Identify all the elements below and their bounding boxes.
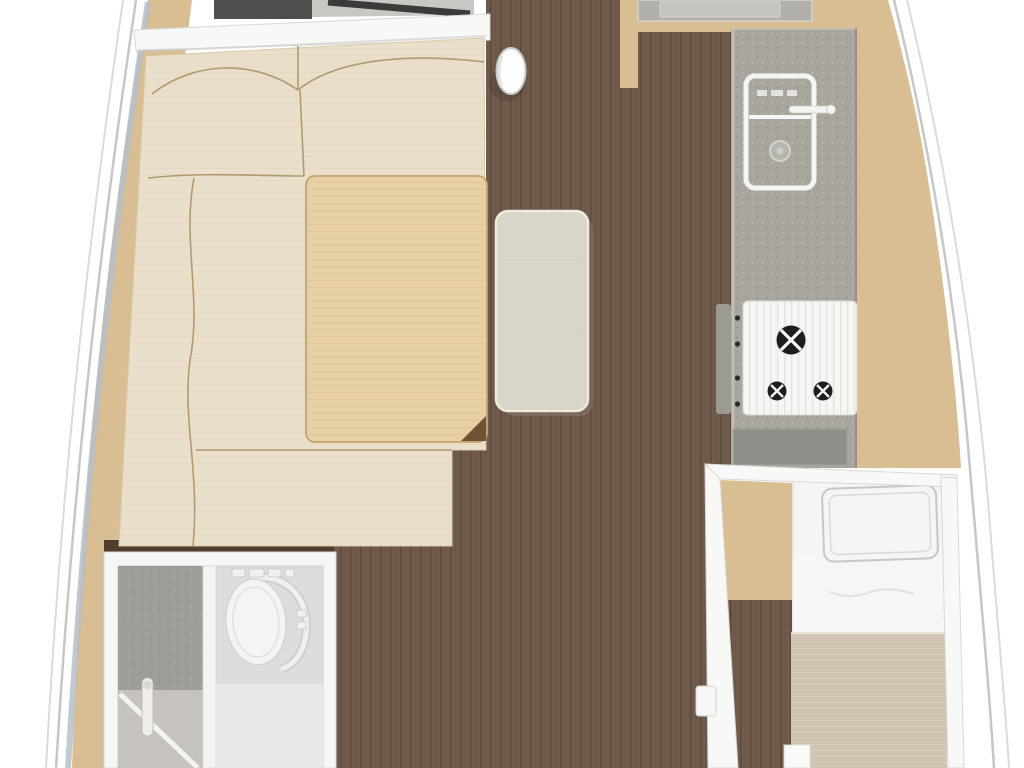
floor-plan	[0, 0, 1024, 768]
stove	[743, 301, 857, 415]
shower-head	[143, 681, 152, 690]
toilet-button	[249, 569, 264, 577]
floor-plan-stage	[0, 0, 1024, 768]
aft-cabin	[696, 464, 964, 768]
drainer-slot	[787, 90, 797, 96]
sink-drainer-slots	[757, 90, 797, 96]
aft-cabin-shelf	[720, 480, 793, 600]
galley-forward-hatch	[660, 2, 780, 17]
galley-return-edge	[620, 0, 638, 88]
toilet-button	[268, 569, 281, 577]
berth-filler-pad	[306, 176, 487, 442]
drainer-slot	[757, 90, 767, 96]
aft-cabin-floor	[728, 600, 793, 768]
toilet-button	[232, 569, 245, 577]
berth-blanket	[791, 632, 947, 768]
berth-sheet	[793, 558, 945, 635]
faucet-base	[827, 105, 836, 114]
berth-step	[784, 745, 810, 768]
stove-knob	[735, 375, 740, 380]
head-floor-aft	[216, 684, 323, 768]
toilet-pump	[297, 622, 306, 629]
stove-burner-right	[814, 382, 833, 401]
forward-cabinet	[214, 0, 312, 19]
sink-drain-hole	[777, 148, 784, 155]
galley-aft-locker	[733, 429, 847, 465]
cabin-door-jamb	[696, 686, 716, 716]
salon-table	[496, 211, 588, 411]
drainer-slot	[771, 90, 783, 96]
stove-burner-large	[777, 326, 806, 355]
toilet-pump	[297, 610, 306, 617]
berth-pillow	[822, 485, 938, 562]
stove-gimbal-rail	[716, 304, 731, 414]
stove-burner-left	[768, 382, 787, 401]
stove-knob	[735, 401, 740, 406]
stove-knob	[735, 341, 740, 346]
head-divider-wall	[203, 566, 216, 768]
toilet-button	[285, 569, 294, 577]
head	[104, 552, 336, 768]
stove-knob	[735, 315, 740, 320]
